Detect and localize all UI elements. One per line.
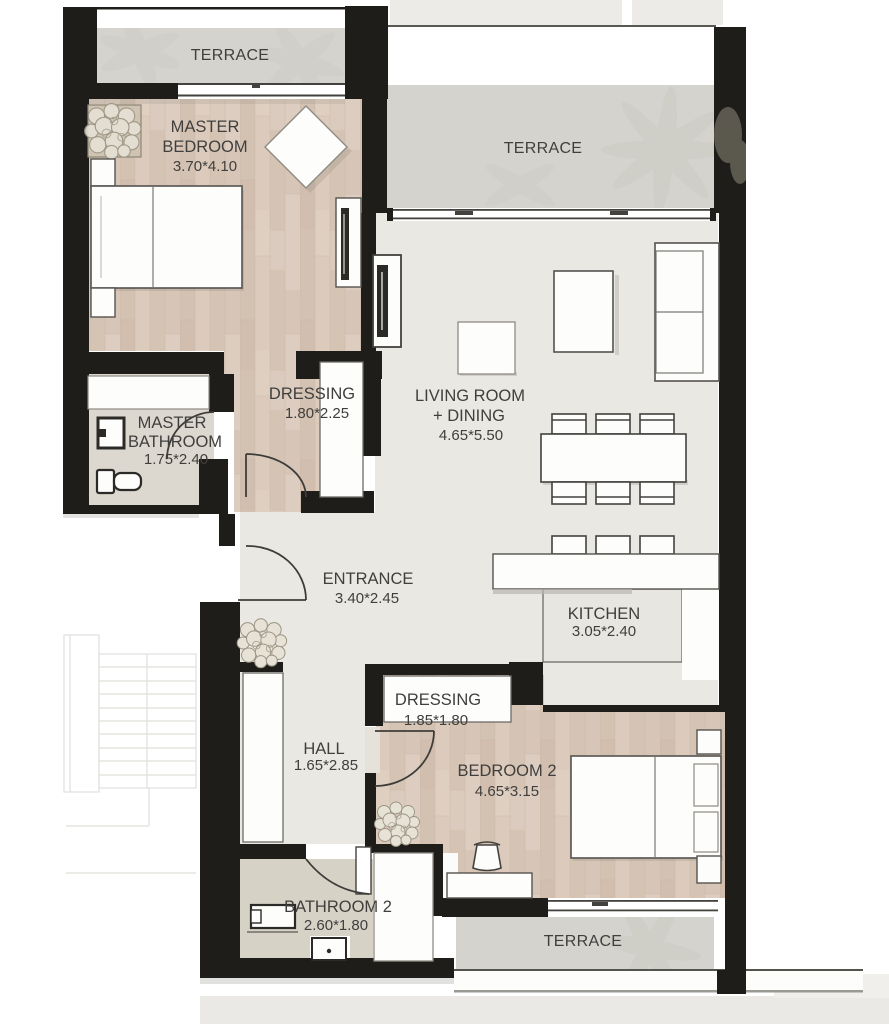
svg-text:MASTER: MASTER xyxy=(171,118,240,136)
svg-text:ENTRANCE: ENTRANCE xyxy=(323,570,414,588)
svg-text:LIVING ROOM: LIVING ROOM xyxy=(415,387,525,405)
svg-text:BATHROOM: BATHROOM xyxy=(128,433,222,451)
svg-text:TERRACE: TERRACE xyxy=(544,933,623,950)
svg-text:TERRACE: TERRACE xyxy=(504,140,583,157)
svg-text:MASTER: MASTER xyxy=(138,414,207,432)
svg-text:HALL: HALL xyxy=(303,740,344,758)
svg-text:4.65*5.50: 4.65*5.50 xyxy=(439,427,503,444)
svg-text:4.65*3.15: 4.65*3.15 xyxy=(475,783,539,800)
svg-text:1.65*2.85: 1.65*2.85 xyxy=(294,757,358,774)
svg-text:3.70*4.10: 3.70*4.10 xyxy=(173,158,237,175)
svg-text:1.75*2.40: 1.75*2.40 xyxy=(144,451,208,468)
svg-text:+ DINING: + DINING xyxy=(433,407,505,425)
svg-text:BEDROOM 2: BEDROOM 2 xyxy=(457,762,556,780)
svg-text:BEDROOM: BEDROOM xyxy=(162,138,247,156)
svg-text:DRESSING: DRESSING xyxy=(269,385,355,403)
svg-text:KITCHEN: KITCHEN xyxy=(568,605,640,623)
svg-text:BATHROOM 2: BATHROOM 2 xyxy=(284,898,392,916)
svg-text:DRESSING: DRESSING xyxy=(395,691,481,709)
svg-text:3.05*2.40: 3.05*2.40 xyxy=(572,623,636,640)
svg-text:TERRACE: TERRACE xyxy=(191,47,270,64)
svg-text:3.40*2.45: 3.40*2.45 xyxy=(335,590,399,607)
svg-text:1.85*1.80: 1.85*1.80 xyxy=(404,712,468,729)
svg-text:2.60*1.80: 2.60*1.80 xyxy=(304,917,368,934)
svg-text:1.80*2.25: 1.80*2.25 xyxy=(285,405,349,422)
